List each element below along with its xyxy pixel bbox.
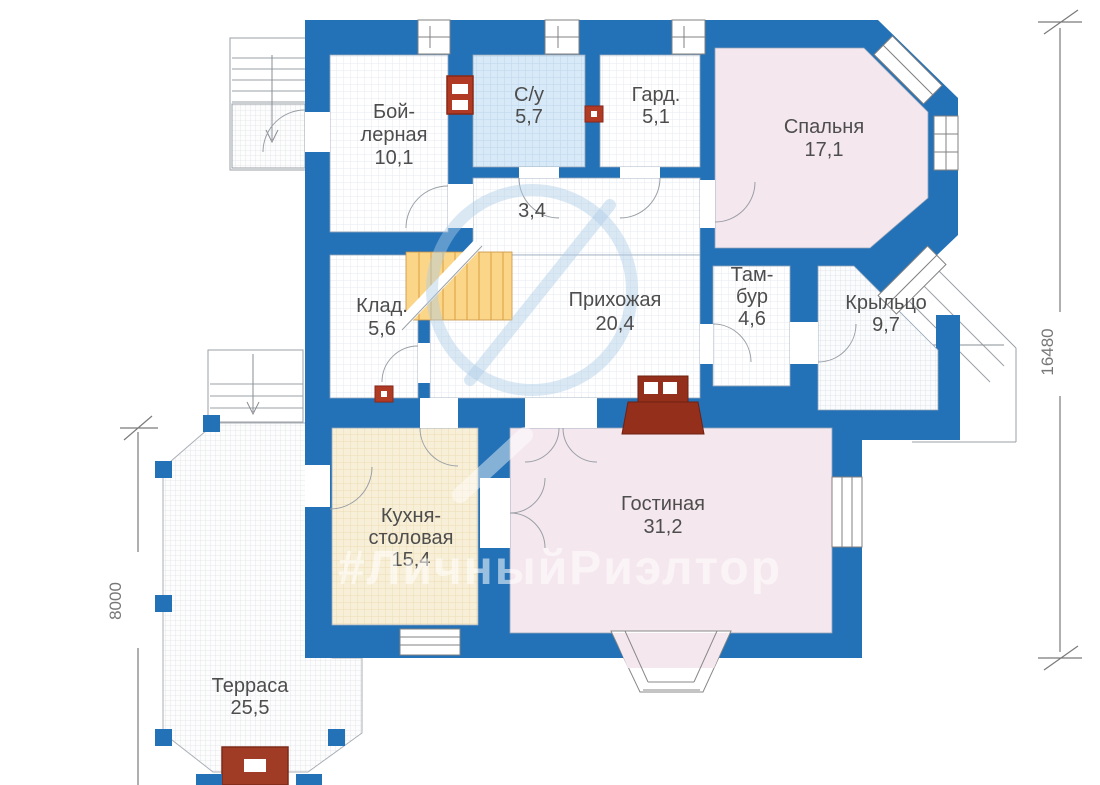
window-top-2 [545,20,579,54]
flue-icon-2 [375,386,393,402]
floor-plan: Бой- лерная 10,1 С/у 5,7 Гард. 5,1 Спаль… [0,0,1100,785]
room-area-hallway: 20,4 [596,313,635,335]
staircase [398,244,512,330]
dimension-right-label: 16480 [1038,328,1057,375]
wall-porch-right [936,315,960,440]
room-label-hallway: Прихожая [569,289,662,311]
window-living-right [832,477,862,547]
room-area-storage: 5,6 [368,318,396,340]
room-label-bathroom: С/у [514,84,544,106]
room-label-wardrobe: Гард. [632,84,681,106]
window-top-3 [672,20,705,54]
window-bedroom-right [934,116,958,170]
room-label-vestibule-line2: бур [736,286,768,308]
floor-plan-drawing: Бой- лерная 10,1 С/у 5,7 Гард. 5,1 Спаль… [0,0,1100,785]
window-top-1 [418,20,450,54]
room-area-bedroom: 17,1 [805,139,844,161]
room-area-wardrobe: 5,1 [642,106,670,128]
room-area-boiler: 10,1 [375,147,414,169]
room-label-bedroom: Спальня [784,116,864,138]
room-area-terrace: 25,5 [231,697,270,719]
boiler-unit-icon [447,76,473,114]
room-area-vestibule: 4,6 [738,308,766,330]
room-label-kitchen-line1: Кухня- [381,505,441,527]
window-kitchen-bottom [400,629,460,655]
room-label-boiler-line1: Бой- [373,101,415,123]
living-bay-window [611,631,731,692]
room-area-porch: 9,7 [872,314,900,336]
room-label-vestibule-line1: Там- [731,264,774,286]
room-area-inner-hall: 3,4 [518,200,546,222]
room-area-living: 31,2 [644,516,683,538]
entry-steps-top-left [230,38,307,170]
terrace-steps [208,350,303,422]
dimension-left-label: 8000 [106,582,125,620]
watermark-text: #ЛичныйРиэлтор [338,542,782,595]
flue-icon-1 [585,106,603,122]
room-label-living: Гостиная [621,493,705,515]
room-label-terrace: Терраса [212,675,290,697]
room-label-storage: Клад. [356,295,408,317]
room-label-boiler-line2: лерная [361,124,428,146]
dimension-left [120,416,158,785]
room-label-porch: Крыльцо [845,292,927,314]
room-area-bathroom: 5,7 [515,106,543,128]
